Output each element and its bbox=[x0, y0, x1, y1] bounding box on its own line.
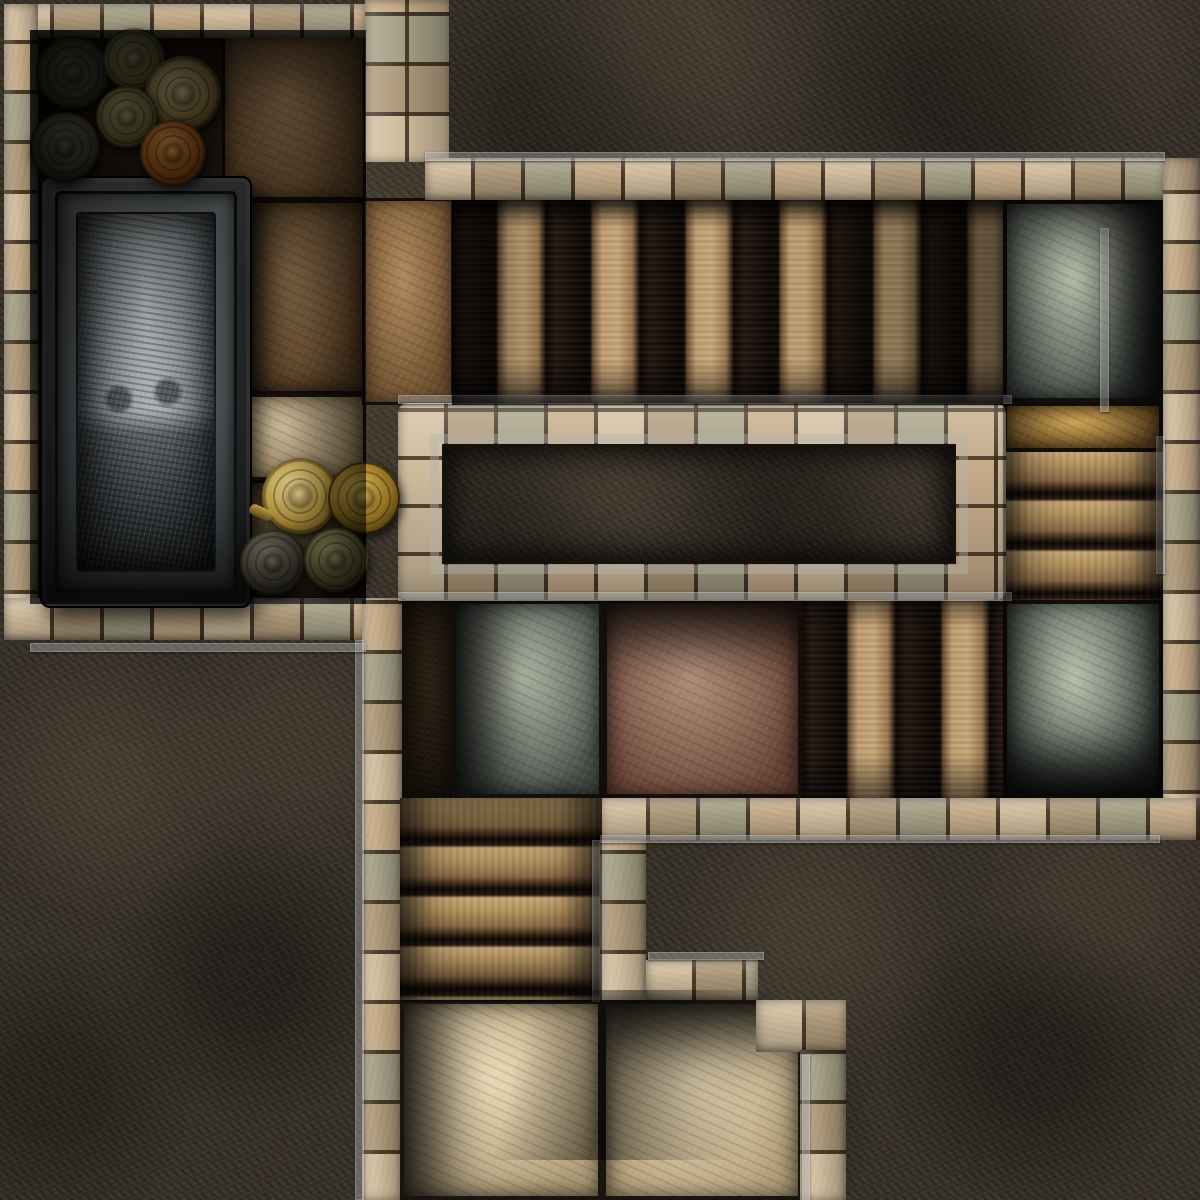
trim-room-bottom bbox=[30, 643, 366, 652]
trim-step-d bbox=[802, 1055, 810, 1200]
rock-southwest-field bbox=[0, 640, 362, 1200]
tile-northeast-gray bbox=[1003, 200, 1163, 402]
trim-south-band bbox=[600, 835, 1160, 843]
trim-frame-bottom bbox=[398, 592, 1012, 601]
wall-east bbox=[1163, 158, 1200, 840]
wall-south-band bbox=[600, 798, 1200, 840]
trim-step-b bbox=[648, 952, 764, 960]
wall-room-left bbox=[4, 4, 38, 640]
dungeon-map[interactable] bbox=[0, 0, 1200, 1200]
stairs-mid bbox=[802, 600, 1003, 798]
plate-dark-1[interactable] bbox=[36, 36, 110, 110]
trim-step-a bbox=[592, 840, 600, 1002]
rock-central-block bbox=[442, 444, 956, 564]
wall-west-mid bbox=[362, 598, 402, 1200]
wall-step-c bbox=[756, 1000, 846, 1052]
plate-dark-2[interactable] bbox=[30, 112, 100, 182]
tile-east-gray bbox=[1003, 600, 1163, 798]
tile-mid-gray bbox=[452, 600, 603, 798]
wall-room-top bbox=[4, 4, 366, 38]
stairs-east-down bbox=[1003, 452, 1163, 600]
tile-south-pale-left bbox=[400, 1000, 602, 1200]
trim-east-room bbox=[1100, 228, 1109, 412]
wall-room-right bbox=[365, 0, 450, 162]
floor-strip-west bbox=[402, 600, 452, 798]
jug-gold[interactable] bbox=[328, 462, 400, 534]
wall-step-a bbox=[600, 840, 646, 1000]
wall-north-band bbox=[425, 158, 1165, 200]
stairs-south bbox=[400, 798, 602, 1002]
floor-slab-northeast bbox=[222, 34, 366, 200]
stairs-east-corridor bbox=[452, 200, 1003, 405]
trim-west-wall bbox=[355, 640, 364, 1200]
plate-rust[interactable] bbox=[140, 120, 206, 186]
sarcophagus[interactable] bbox=[40, 176, 252, 608]
rock-north-field bbox=[448, 0, 1200, 160]
trim-frame-top bbox=[398, 395, 1012, 404]
trim-east-wall bbox=[1156, 436, 1165, 574]
trim-north-band bbox=[425, 152, 1165, 161]
corridor-entry-slab bbox=[362, 198, 454, 405]
plate-dark-3[interactable] bbox=[240, 530, 306, 596]
wall-step-b bbox=[646, 960, 758, 1000]
tile-mid-red bbox=[603, 600, 802, 798]
plate-green-2[interactable] bbox=[304, 528, 368, 592]
slab-amber-east bbox=[1003, 402, 1163, 452]
kettle-gold[interactable] bbox=[262, 458, 338, 534]
